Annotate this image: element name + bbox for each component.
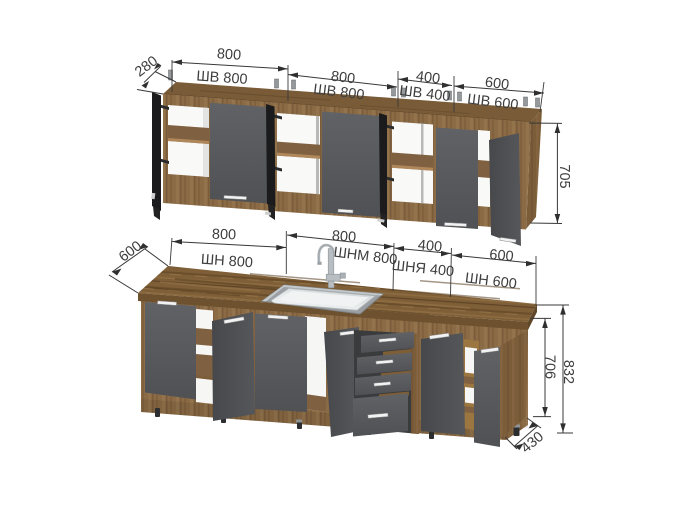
svg-text:832: 832 [560,360,576,384]
svg-text:600: 600 [489,247,515,265]
svg-text:800: 800 [216,46,241,64]
svg-text:800: 800 [331,228,356,246]
svg-text:706: 706 [542,355,558,379]
svg-text:800: 800 [212,227,237,244]
svg-text:600: 600 [484,75,510,94]
svg-text:705: 705 [556,164,572,188]
svg-text:400: 400 [417,237,443,255]
